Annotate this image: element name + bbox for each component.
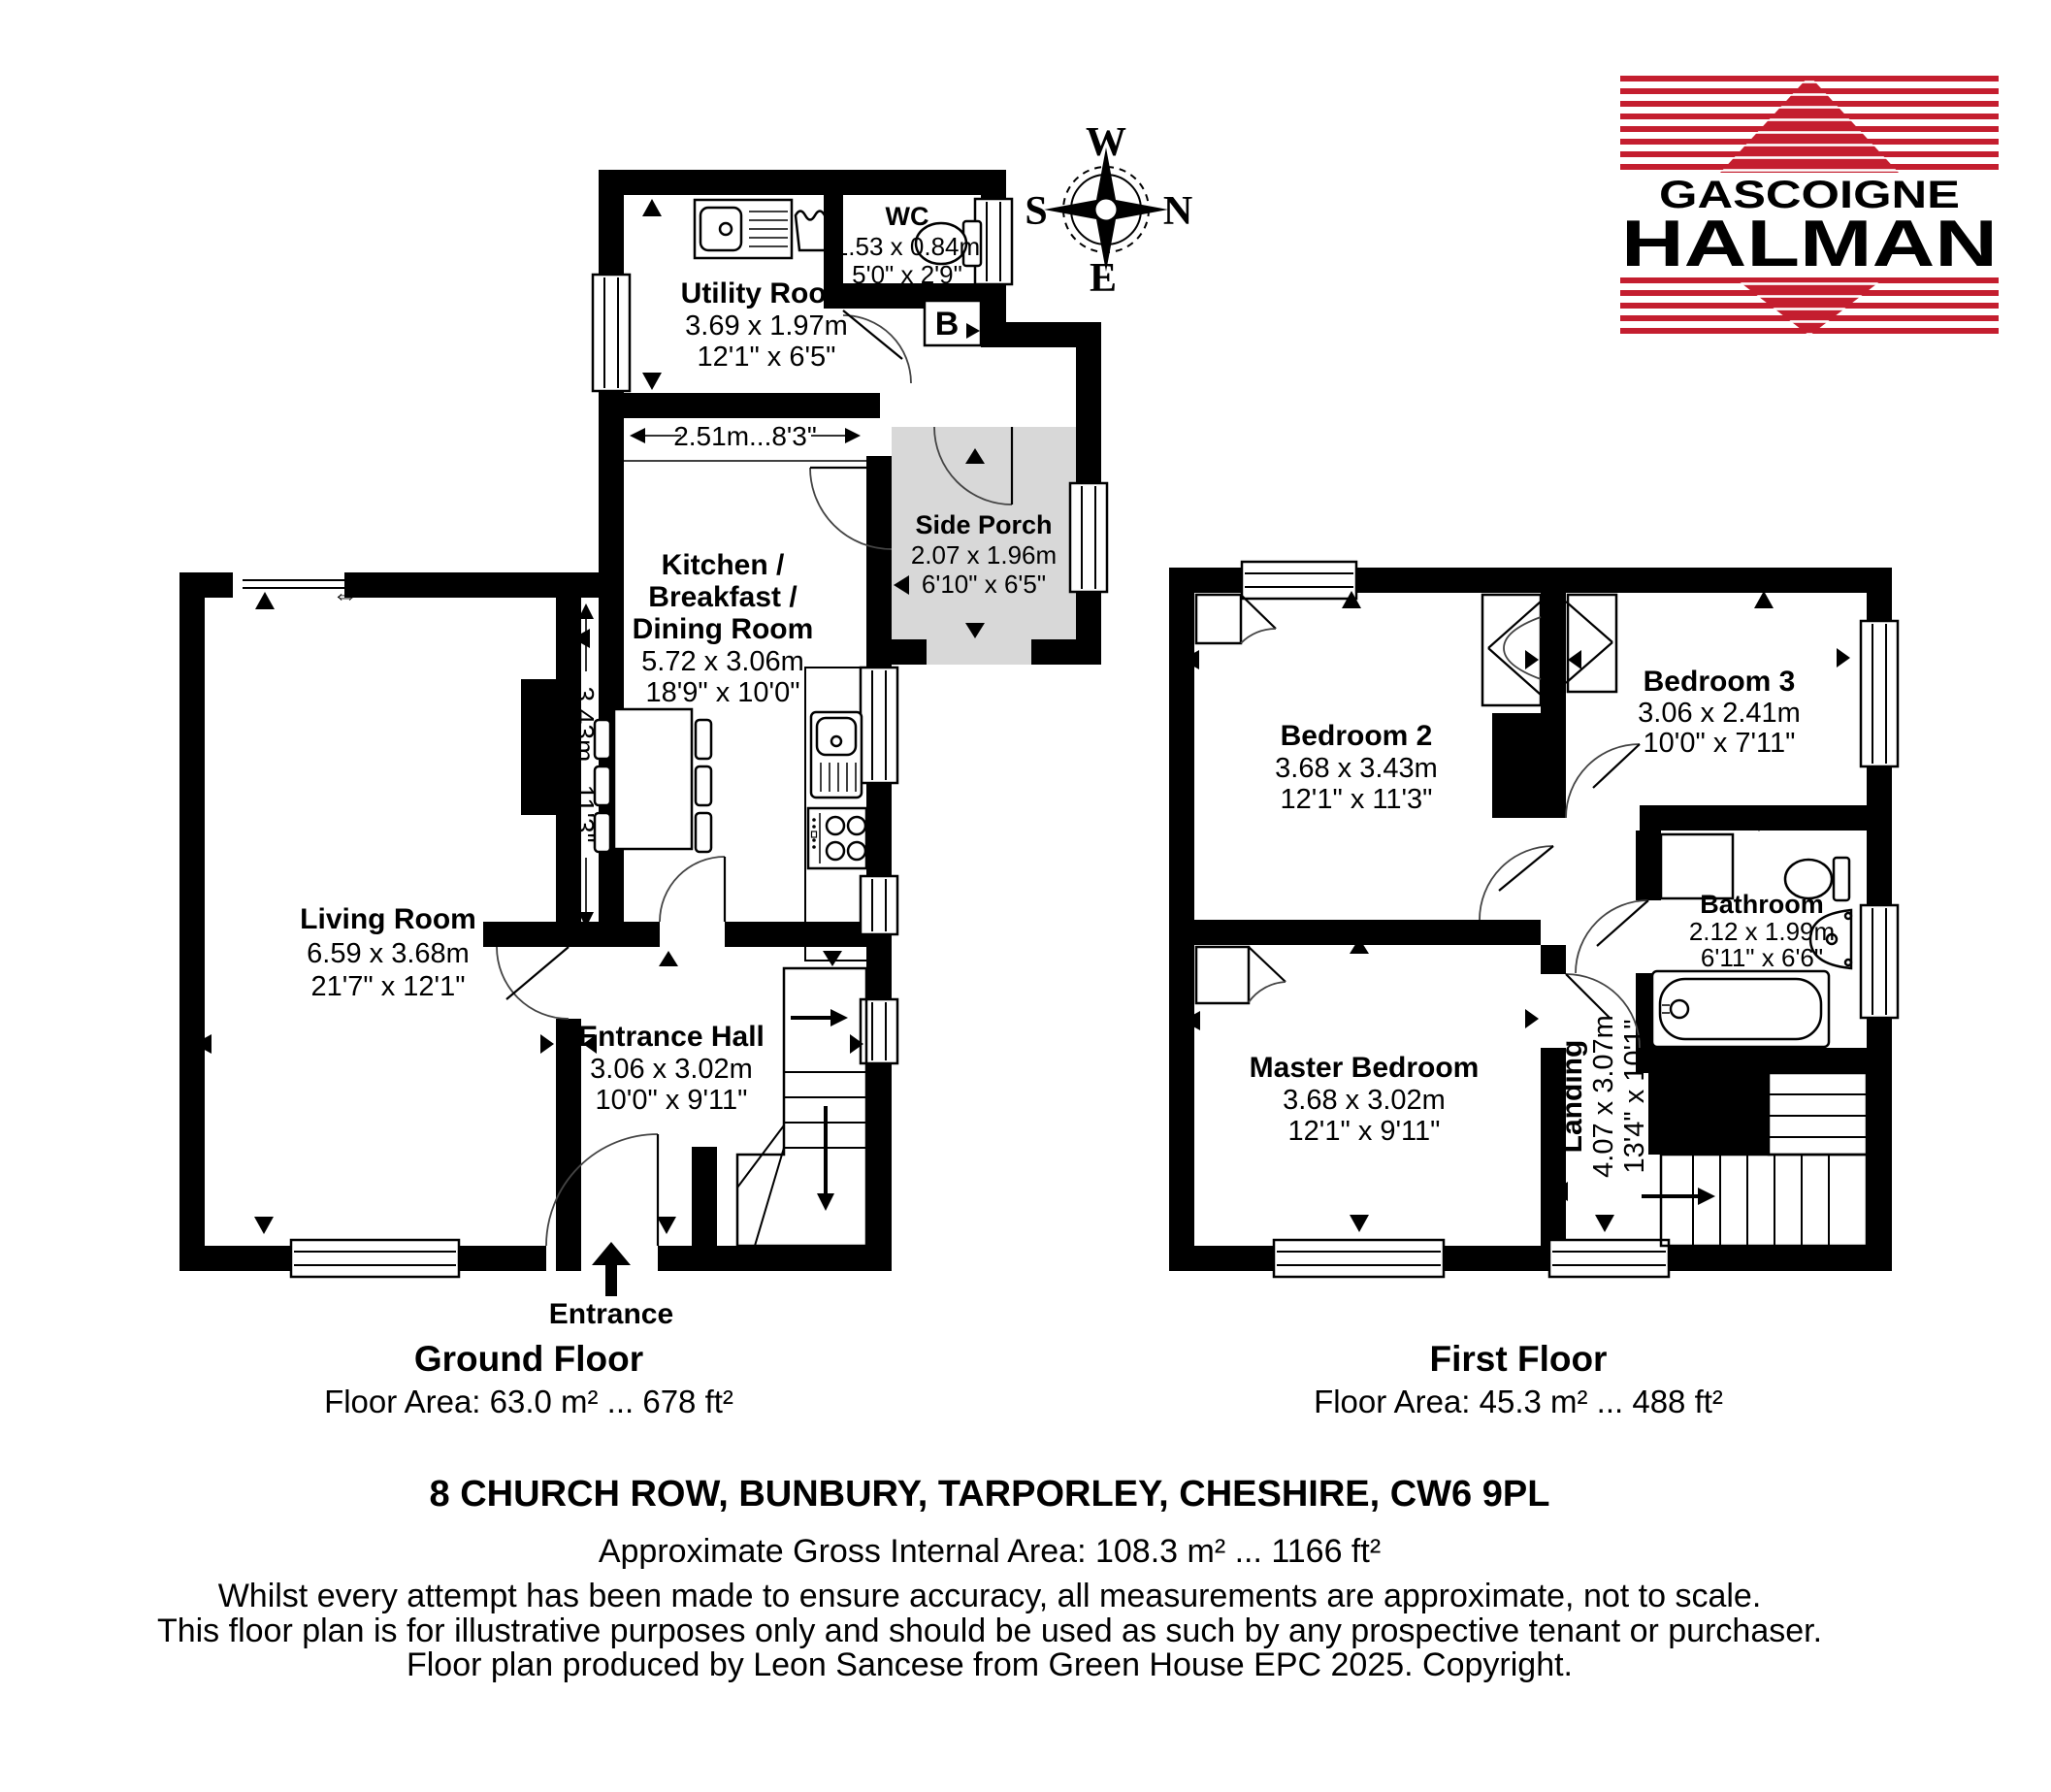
svg-text:2.51m...8'3": 2.51m...8'3" [673, 421, 817, 451]
svg-text:3.06 x 3.02m: 3.06 x 3.02m [590, 1054, 753, 1085]
ground-floor-plan: ⇔ [179, 170, 1107, 1330]
sliding-opening-icon: ⇔ [332, 579, 359, 609]
svg-text:13'4" x 10'1": 13'4" x 10'1" [1619, 1019, 1650, 1173]
footer-text: 8 CHURCH ROW, BUNBURY, TARPORLEY, CHESHI… [157, 1474, 1822, 1683]
svg-text:Breakfast /: Breakfast / [648, 581, 798, 613]
kitchen-width-dimension: 2.51m...8'3" [630, 421, 861, 451]
entrance-arrow-icon [592, 1242, 631, 1296]
room-label-landing: Landing 4.07 x 3.07m 13'4" x 10'1" [1556, 1015, 1650, 1178]
credit-line: Floor plan produced by Leon Sancese from… [407, 1646, 1573, 1683]
utility-sink-icon [695, 200, 792, 258]
svg-text:Ground Floor: Ground Floor [414, 1339, 643, 1379]
room-label-side-porch: Side Porch 2.07 x 1.96m 6'10" x 6'5" [911, 510, 1057, 599]
compass-rose-icon: W S N E [1025, 120, 1192, 301]
svg-text:5.72 x 3.06m: 5.72 x 3.06m [641, 646, 804, 677]
stairs-ground [737, 968, 866, 1246]
svg-text:Floor Area: 63.0 m² ... 678 ft: Floor Area: 63.0 m² ... 678 ft² [324, 1384, 733, 1419]
svg-text:3.68 x 3.02m: 3.68 x 3.02m [1283, 1085, 1446, 1116]
master-closet [1196, 947, 1286, 1003]
svg-text:Master Bedroom: Master Bedroom [1250, 1052, 1480, 1084]
room-label-bedroom2: Bedroom 2 3.68 x 3.43m 12'1" x 11'3" [1275, 720, 1438, 815]
svg-text:First Floor: First Floor [1430, 1339, 1608, 1379]
svg-text:2.07 x 1.96m: 2.07 x 1.96m [911, 540, 1057, 570]
bedroom2-wardrobe [1482, 595, 1541, 705]
disclaimer-line-1: Whilst every attempt has been made to en… [218, 1578, 1762, 1614]
svg-text:Bedroom 3: Bedroom 3 [1644, 666, 1796, 698]
room-label-master: Master Bedroom 3.68 x 3.02m 12'1" x 9'11… [1250, 1052, 1480, 1147]
room-label-living: Living Room 6.59 x 3.68m 21'7" x 12'1" [300, 903, 476, 1002]
gascoigne-halman-logo: GASCOIGNE HALMAN [1620, 76, 1999, 336]
svg-text:10'0" x 9'11": 10'0" x 9'11" [596, 1085, 748, 1116]
boiler-label: B [935, 306, 960, 342]
first-floor-caption: First Floor Floor Area: 45.3 m² ... 488 … [1314, 1339, 1723, 1419]
svg-text:12'1" x 6'5": 12'1" x 6'5" [698, 342, 836, 373]
room-label-bathroom: Bathroom 2.12 x 1.99m 6'11" x 6'6" [1689, 890, 1835, 972]
svg-text:10'0" x 7'11": 10'0" x 7'11" [1644, 728, 1796, 759]
kitchen-sink-icon [811, 712, 862, 798]
svg-text:Dining Room: Dining Room [633, 613, 814, 645]
svg-text:Floor Area: 45.3 m² ... 488 ft: Floor Area: 45.3 m² ... 488 ft² [1314, 1384, 1723, 1419]
svg-text:4.07 x 3.07m: 4.07 x 3.07m [1588, 1015, 1619, 1178]
svg-text:3.69 x 1.97m: 3.69 x 1.97m [685, 310, 848, 342]
svg-text:6'11" x 6'6": 6'11" x 6'6" [1701, 943, 1823, 972]
svg-text:2.12 x 1.99m: 2.12 x 1.99m [1689, 917, 1835, 946]
hob-icon [808, 808, 866, 868]
svg-text:6.59 x 3.68m: 6.59 x 3.68m [307, 938, 470, 969]
kitchen-counter [805, 668, 866, 961]
svg-text:12'1" x 9'11": 12'1" x 9'11" [1288, 1116, 1441, 1147]
bedroom2-closet [1196, 595, 1276, 643]
svg-text:Utility Room: Utility Room [681, 277, 853, 310]
svg-text:Side Porch: Side Porch [915, 510, 1052, 539]
svg-text:3.43m...11'3": 3.43m...11'3" [570, 686, 600, 842]
svg-text:12'1" x 11'3": 12'1" x 11'3" [1281, 784, 1433, 815]
svg-text:WC: WC [886, 202, 929, 231]
compass-west-label: W [1086, 120, 1126, 165]
svg-text:18'9" x 10'0": 18'9" x 10'0" [645, 677, 799, 708]
svg-text:Entrance Hall: Entrance Hall [578, 1021, 765, 1053]
svg-text:3.06 x 2.41m: 3.06 x 2.41m [1638, 698, 1801, 729]
room-label-hall: Entrance Hall 3.06 x 3.02m 10'0" x 9'11" [578, 1021, 765, 1116]
room-label-utility: Utility Room 3.69 x 1.97m 12'1" x 6'5" [681, 277, 853, 373]
entrance-label: Entrance [549, 1298, 673, 1330]
first-floor-plan: Bedroom 2 3.68 x 3.43m 12'1" x 11'3" Bed… [1169, 562, 1898, 1277]
stairs-direction-arrow-icon [1642, 1188, 1715, 1205]
stairs-up-arrow-icon [791, 1009, 848, 1026]
svg-text:Living Room: Living Room [300, 903, 476, 935]
svg-text:5'0" x 2'9": 5'0" x 2'9" [852, 260, 962, 289]
gross-area-line: Approximate Gross Internal Area: 108.3 m… [599, 1533, 1381, 1570]
compass-east-label: E [1090, 256, 1117, 301]
svg-text:3.68 x 3.43m: 3.68 x 3.43m [1275, 753, 1438, 784]
svg-text:Bedroom 2: Bedroom 2 [1281, 720, 1433, 752]
logo-text-bottom: HALMAN [1621, 207, 1998, 280]
ground-floor-caption: Ground Floor Floor Area: 63.0 m² ... 678… [324, 1339, 733, 1419]
floorplan-page: { "colors": { "brand_red": "#c41e2f", "p… [0, 0, 2051, 1792]
room-label-bedroom3: Bedroom 3 3.06 x 2.41m 10'0" x 7'11" [1638, 666, 1801, 759]
bath-icon [1652, 971, 1829, 1047]
svg-text:Landing: Landing [1556, 1040, 1588, 1154]
svg-text:1.53 x 0.84m: 1.53 x 0.84m [834, 232, 980, 261]
boiler-box: B [925, 301, 981, 345]
svg-text:6'10" x 6'5": 6'10" x 6'5" [922, 570, 1046, 599]
svg-text:21'7" x 12'1": 21'7" x 12'1" [310, 971, 465, 1002]
compass-south-label: S [1025, 189, 1047, 234]
disclaimer-line-2: This floor plan is for illustrative purp… [157, 1613, 1822, 1649]
svg-text:Kitchen /: Kitchen / [662, 549, 785, 581]
compass-north-label: N [1163, 189, 1192, 234]
address-line: 8 CHURCH ROW, BUNBURY, TARPORLEY, CHESHI… [430, 1474, 1550, 1515]
bedroom3-closet [1566, 595, 1616, 692]
floorplan-canvas: ⇔ [0, 0, 2051, 1792]
room-label-kitchen: Kitchen / Breakfast / Dining Room 5.72 x… [633, 549, 814, 708]
svg-text:Bathroom: Bathroom [1700, 890, 1824, 919]
room-label-wc: WC 1.53 x 0.84m 5'0" x 2'9" [834, 202, 980, 289]
